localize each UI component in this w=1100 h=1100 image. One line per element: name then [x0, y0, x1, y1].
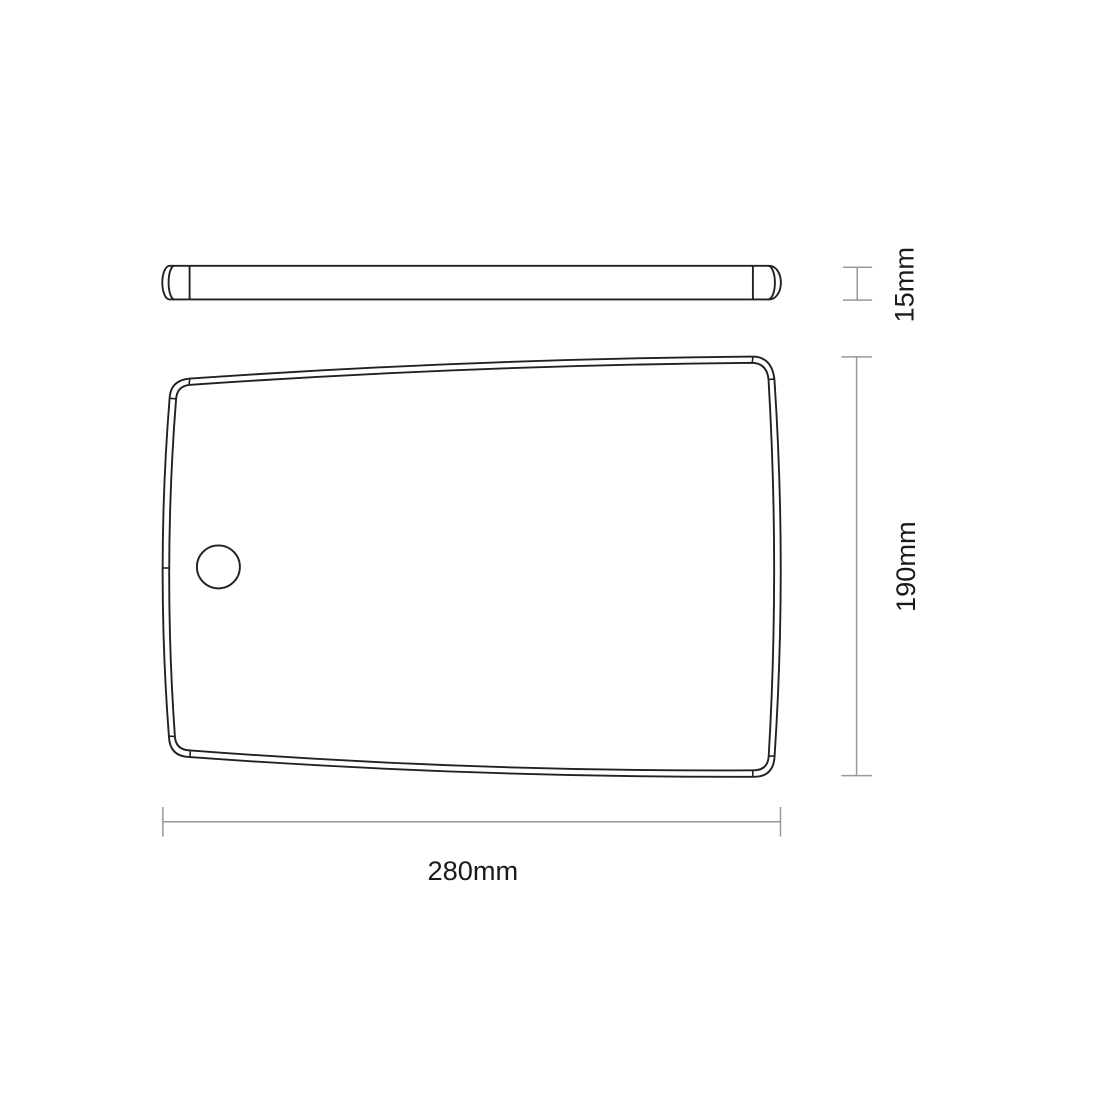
svg-text:280mm: 280mm — [428, 855, 519, 886]
svg-text:15mm: 15mm — [889, 247, 920, 323]
svg-text:190mm: 190mm — [890, 521, 921, 612]
